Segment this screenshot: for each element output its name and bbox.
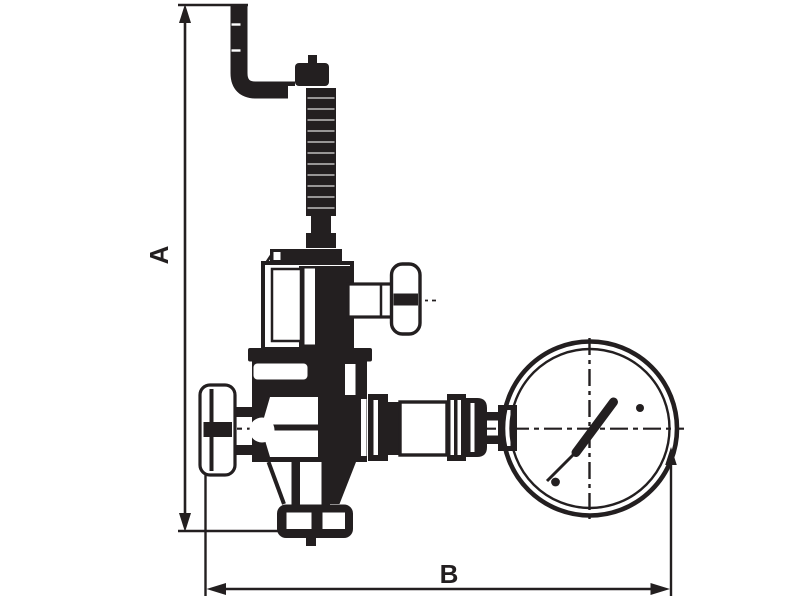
ink-layer: A B bbox=[144, 4, 684, 596]
outlet-stem-left bbox=[292, 462, 301, 505]
adjusting-screw bbox=[288, 55, 338, 249]
test-handle-shaft bbox=[348, 284, 393, 317]
dim-a-label: A bbox=[144, 245, 174, 264]
outlet-tip bbox=[306, 538, 316, 546]
dim-a-arrow-up bbox=[179, 4, 191, 23]
test-handle bbox=[348, 264, 436, 334]
outlet-right-slant bbox=[327, 462, 356, 504]
body-right-slit bbox=[361, 399, 367, 456]
bonnet-left-panel bbox=[272, 269, 301, 341]
outlet-stem-right bbox=[322, 462, 331, 505]
body-upper-panel bbox=[254, 364, 308, 380]
dimension-b: B bbox=[206, 447, 677, 596]
gauge-stem-lower bbox=[487, 436, 499, 445]
drawing-canvas: A B bbox=[0, 0, 800, 598]
cap-nut bbox=[295, 63, 329, 86]
spring-housing bbox=[263, 249, 352, 349]
body-upper-cavity bbox=[262, 397, 318, 425]
screw-lower bbox=[306, 233, 336, 248]
bonnet-top-band bbox=[270, 249, 342, 263]
valve-dimension-drawing: A B bbox=[0, 0, 800, 598]
pipe-union-nut-slit bbox=[458, 400, 462, 455]
union-nut-facet-left bbox=[287, 513, 312, 530]
gauge-needle bbox=[576, 402, 614, 453]
pipe-union-nut bbox=[447, 394, 466, 461]
outlet-pipe-run bbox=[239, 4, 295, 90]
body-top-flange bbox=[248, 348, 372, 362]
valve-body bbox=[233, 348, 372, 462]
pipe-union-flange-slit bbox=[374, 400, 379, 455]
screw-step bbox=[311, 216, 331, 233]
body-channel-slit bbox=[345, 364, 356, 395]
test-handle-knob-hub bbox=[394, 294, 419, 306]
inlet-handwheel bbox=[200, 385, 235, 475]
gauge-counterweight-dot bbox=[551, 478, 560, 487]
gauge-stem-upper bbox=[487, 412, 499, 421]
pipe-band bbox=[388, 402, 400, 455]
cap-nut-tip bbox=[308, 55, 317, 64]
bottom-outlet bbox=[269, 462, 357, 546]
gauge-face-screw bbox=[636, 404, 644, 412]
pipe-round-nut-slit bbox=[471, 403, 475, 452]
bonnet-stem-slit bbox=[305, 269, 316, 345]
bonnet-top-band-notch bbox=[274, 252, 281, 260]
pipe-nipple bbox=[400, 402, 447, 455]
handwheel-hub-band bbox=[204, 422, 233, 437]
union-nut-facet-right bbox=[323, 513, 346, 530]
dim-b-arrow-right bbox=[651, 583, 671, 595]
gauge-needle-tail bbox=[547, 448, 580, 481]
pipe-round-nut bbox=[466, 398, 487, 457]
dim-b-label: B bbox=[440, 559, 459, 589]
outlet-left-slant bbox=[269, 462, 285, 504]
outlet-pipe bbox=[232, 4, 296, 90]
dim-b-arrow-left bbox=[207, 583, 227, 595]
dim-a-arrow-down bbox=[179, 513, 191, 532]
pipe-union-nut-slit bbox=[451, 400, 455, 455]
gauge-piping bbox=[368, 394, 517, 461]
body-inlet-notch bbox=[250, 418, 275, 443]
